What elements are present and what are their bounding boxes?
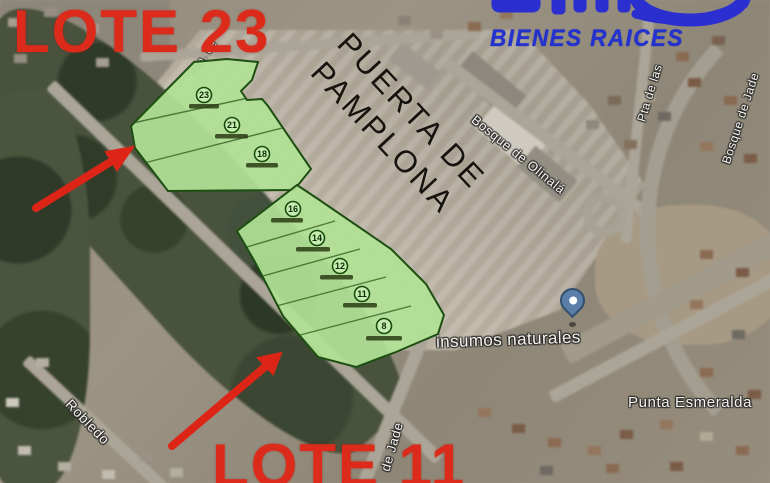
annotation-lote-23: LOTE 23 [13,2,270,62]
lot-area-label [296,247,330,252]
lot-number: 8 [381,321,386,331]
lot-number: 11 [357,289,367,299]
lot-number: 14 [312,233,322,243]
lot-number: 21 [227,120,237,130]
lots-overlay: 23 21 18 16 14 12 [0,0,770,483]
lot-cluster-bottom: 16 14 12 11 8 [237,185,444,367]
lot-number: 18 [257,149,267,159]
lot-number: 16 [288,204,298,214]
lot-area-label [271,218,303,223]
lot-area-label [343,303,377,308]
annotation-lote-11: LOTE 11 [212,436,466,483]
lot-area-label [246,163,278,168]
lot-number: 12 [335,261,345,271]
brand-logo-mark-partial [492,0,745,20]
lot-area-label [320,275,353,280]
lot-cluster-top: 23 21 18 [128,59,311,191]
lot-area-label [215,134,248,139]
lot-number: 23 [199,90,209,100]
real-estate-map-flyer: Pta. de Bosque de Olinalá Pta de las Bos… [0,0,770,483]
arrow-to-lote-23 [36,147,133,208]
lot-area-label [189,104,219,109]
brand-wordmark: BIENES RAICES [490,25,740,53]
lot-area-label [366,336,402,341]
